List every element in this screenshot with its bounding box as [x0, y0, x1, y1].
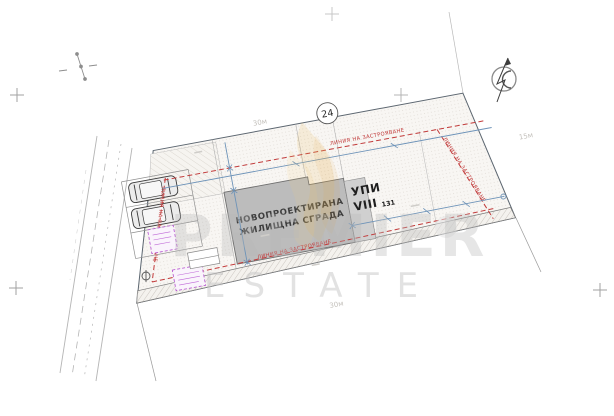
site-plan-canvas: НОВОПРОЕКТИРАНА ЖИЛИЩНА СГРАДА УПИ VIII1…: [0, 0, 614, 416]
survey-point-icon: [59, 53, 97, 81]
north-arrow-icon: [492, 58, 516, 102]
watermark-text-premier: PREMIER: [170, 202, 488, 270]
road-lines: [60, 136, 132, 381]
dim-label-right: 15м: [518, 131, 533, 141]
node-badge-number: 24: [321, 108, 335, 121]
watermark-text-estate: ESTATE: [204, 266, 436, 306]
dim-label-top: 30м: [252, 117, 267, 127]
site-plan: НОВОПРОЕКТИРАНА ЖИЛИЩНА СГРАДА УПИ VIII1…: [0, 0, 614, 416]
